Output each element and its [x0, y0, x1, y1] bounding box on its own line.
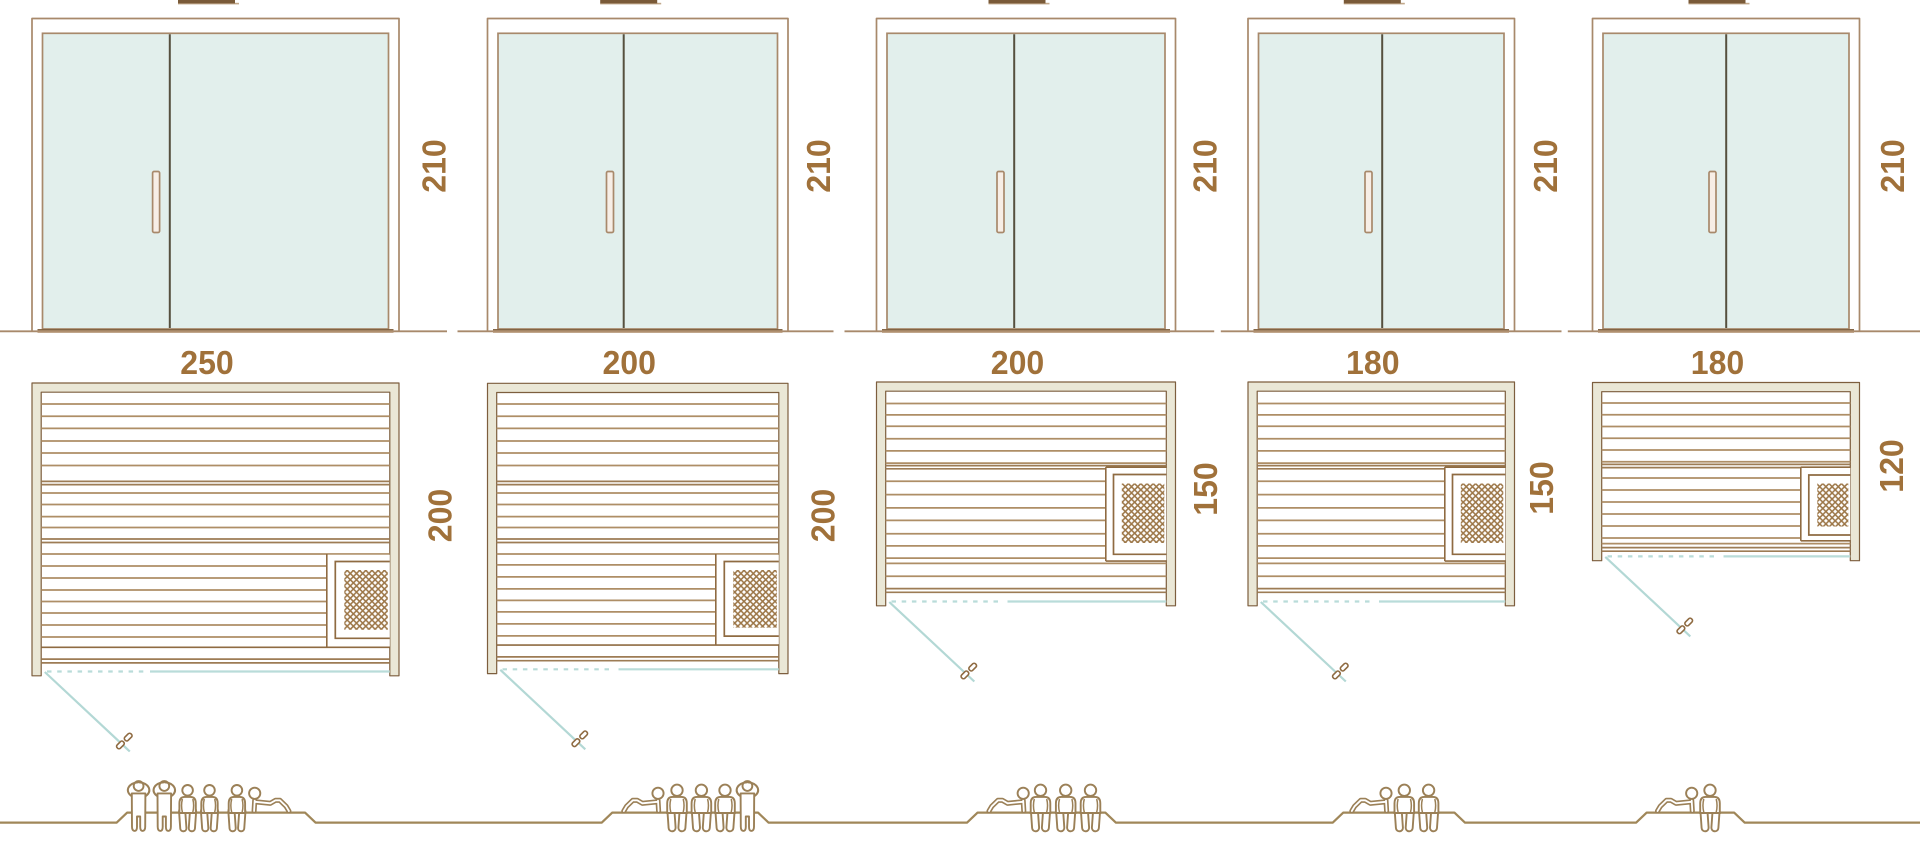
svg-text:180: 180 — [1691, 345, 1745, 382]
svg-text:150: 150 — [1188, 462, 1225, 516]
svg-text:210: 210 — [1188, 139, 1225, 193]
svg-text:250: 250 — [180, 345, 234, 382]
svg-text:200: 200 — [602, 345, 656, 382]
svg-text:210: 210 — [801, 139, 838, 193]
svg-text:200: 200 — [806, 489, 843, 543]
svg-text:200: 200 — [423, 489, 460, 543]
svg-text:210: 210 — [1875, 139, 1912, 193]
svg-text:210: 210 — [1528, 139, 1565, 193]
svg-text:180: 180 — [1346, 345, 1400, 382]
svg-text:120: 120 — [1874, 439, 1911, 493]
svg-text:200: 200 — [991, 345, 1045, 382]
svg-text:210: 210 — [417, 139, 454, 193]
svg-text:150: 150 — [1524, 461, 1561, 515]
